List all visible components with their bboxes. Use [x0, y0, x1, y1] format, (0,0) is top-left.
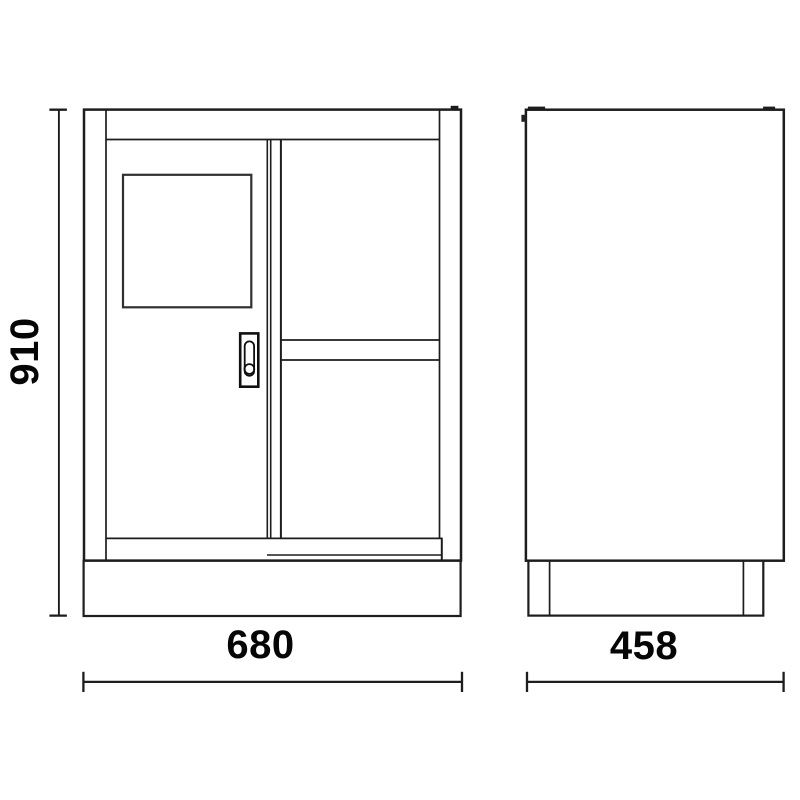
- front-view: [84, 106, 461, 616]
- width-dimension-label: 680: [226, 623, 294, 667]
- door-window-panel: [123, 175, 251, 307]
- front-top-right-tab: [451, 106, 459, 110]
- side-plinth-base: [528, 561, 763, 616]
- cabinet-drawing: 910 680 458: [0, 0, 800, 800]
- height-dimension: 910: [3, 110, 67, 616]
- height-dimension-label: 910: [3, 317, 47, 385]
- hinge-bump: [521, 115, 526, 122]
- depth-dimension-label: 458: [610, 624, 678, 668]
- door-handle: [240, 333, 258, 386]
- technical-drawing-page: 910 680 458: [0, 0, 800, 800]
- side-top-left-tab: [528, 107, 545, 111]
- side-view: [521, 107, 783, 616]
- side-top-right-tab: [763, 107, 775, 111]
- depth-dimension: 458: [527, 624, 784, 692]
- side-body-outline: [526, 110, 784, 561]
- front-plinth-base: [84, 561, 461, 616]
- width-dimension: 680: [83, 623, 462, 692]
